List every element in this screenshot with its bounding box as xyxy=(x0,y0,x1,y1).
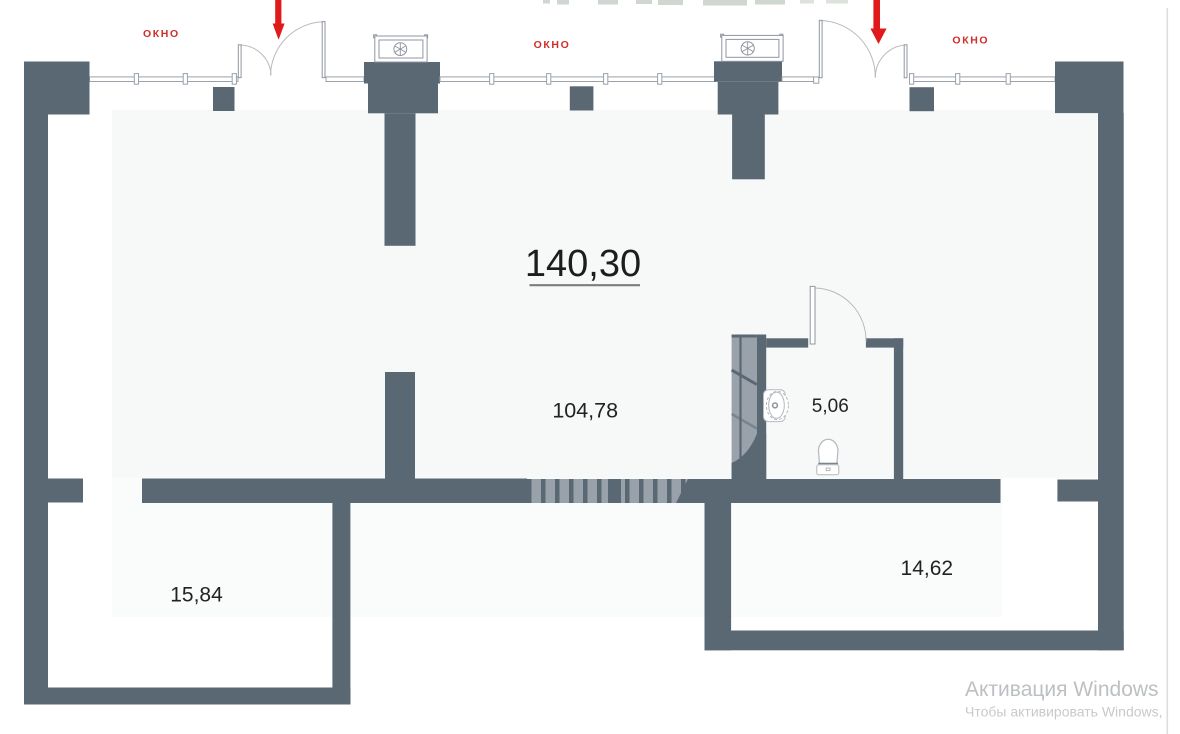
svg-text:14,62: 14,62 xyxy=(901,557,954,580)
svg-text:Активация Windows: Активация Windows xyxy=(965,678,1159,701)
svg-text:ОКНО: ОКНО xyxy=(952,34,989,46)
svg-text:5,06: 5,06 xyxy=(812,396,849,417)
svg-text:ОКНО: ОКНО xyxy=(534,39,571,51)
svg-text:15,84: 15,84 xyxy=(170,584,223,607)
svg-text:104,78: 104,78 xyxy=(552,399,618,423)
svg-text:ОКНО: ОКНО xyxy=(143,28,180,40)
svg-text:140,30: 140,30 xyxy=(525,243,641,285)
svg-text:Чтобы активировать Windows,: Чтобы активировать Windows, xyxy=(965,704,1163,720)
